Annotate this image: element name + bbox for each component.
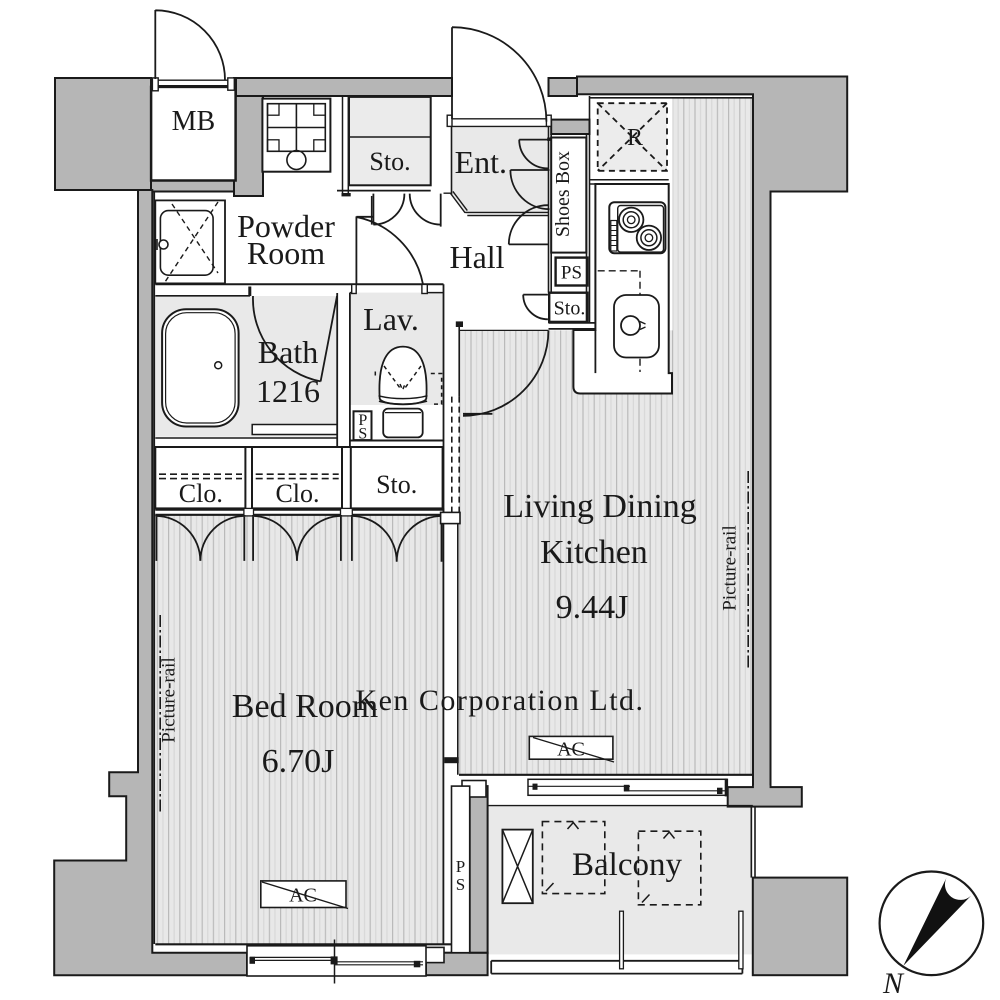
svg-text:Picture-rail: Picture-rail	[159, 657, 180, 742]
svg-text:Sto.: Sto.	[369, 147, 410, 176]
svg-text:Balcony: Balcony	[572, 847, 682, 883]
svg-text:Clo.: Clo.	[179, 479, 223, 508]
svg-text:Shoes Box: Shoes Box	[552, 151, 574, 237]
svg-text:AC: AC	[557, 739, 585, 761]
svg-text:N: N	[882, 967, 905, 1000]
svg-text:P: P	[456, 857, 465, 876]
svg-text:Room: Room	[247, 235, 325, 271]
svg-text:Ent.: Ent.	[455, 144, 507, 180]
svg-text:1216: 1216	[256, 373, 320, 409]
svg-text:Clo.: Clo.	[275, 479, 319, 508]
svg-text:9.44J: 9.44J	[556, 589, 629, 626]
svg-text:Sto.: Sto.	[376, 470, 417, 499]
svg-text:Living Dining: Living Dining	[503, 488, 697, 525]
svg-text:R: R	[627, 125, 643, 151]
svg-text:S: S	[456, 875, 465, 894]
svg-text:Picture-rail: Picture-rail	[720, 525, 741, 610]
svg-text:Kitchen: Kitchen	[540, 534, 648, 571]
svg-text:Bath: Bath	[258, 334, 318, 370]
svg-text:S: S	[358, 426, 367, 443]
svg-text:Ken Corporation Ltd.: Ken Corporation Ltd.	[355, 684, 644, 717]
svg-text:PS: PS	[561, 263, 582, 284]
svg-text:Lav.: Lav.	[363, 301, 419, 337]
svg-text:AC: AC	[289, 885, 317, 907]
svg-text:Bed Room: Bed Room	[232, 688, 378, 725]
svg-text:MB: MB	[172, 106, 216, 137]
svg-text:6.70J: 6.70J	[262, 743, 335, 780]
svg-text:Sto.: Sto.	[554, 298, 586, 320]
svg-text:Hall: Hall	[449, 239, 504, 275]
